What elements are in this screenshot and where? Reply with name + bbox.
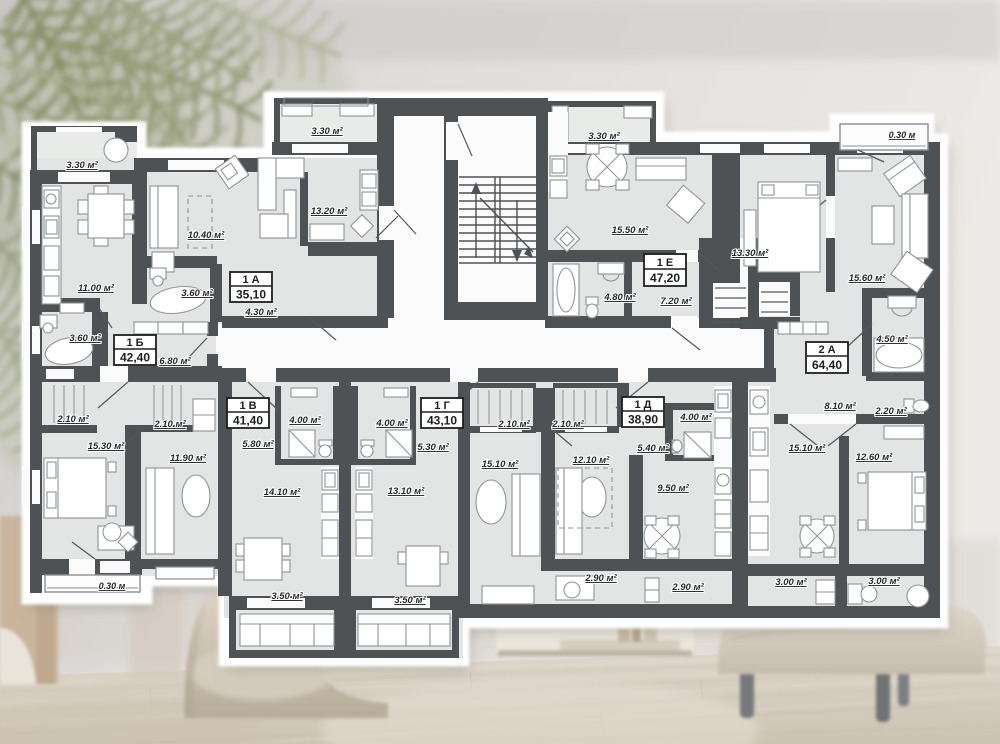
- svg-text:3.60 м²: 3.60 м²: [69, 333, 101, 344]
- svg-text:41,40: 41,40: [233, 414, 263, 428]
- svg-text:1 В: 1 В: [239, 400, 256, 412]
- svg-text:42,40: 42,40: [120, 351, 150, 365]
- svg-text:3.30 м²: 3.30 м²: [588, 131, 620, 142]
- svg-text:4.00 м²: 4.00 м²: [375, 418, 408, 429]
- svg-text:15.50 м²: 15.50 м²: [612, 225, 649, 236]
- svg-text:0.30 м: 0.30 м: [99, 581, 126, 591]
- svg-text:35,10: 35,10: [236, 288, 266, 302]
- svg-text:1 А: 1 А: [242, 274, 259, 286]
- svg-text:3.30 м²: 3.30 м²: [66, 160, 98, 171]
- svg-text:12.10 м²: 12.10 м²: [573, 455, 610, 466]
- svg-text:43,10: 43,10: [427, 414, 457, 428]
- svg-text:2.10 м²: 2.10 м²: [153, 419, 186, 430]
- svg-text:2.10 м²: 2.10 м²: [551, 419, 584, 430]
- svg-text:4.00 м²: 4.00 м²: [288, 415, 321, 426]
- svg-text:1 Д: 1 Д: [634, 399, 651, 411]
- svg-text:47,20: 47,20: [650, 271, 680, 285]
- svg-text:2.90 м²: 2.90 м²: [671, 582, 704, 593]
- svg-text:5.40 м²: 5.40 м²: [637, 443, 669, 454]
- svg-text:4.30 м²: 4.30 м²: [244, 307, 277, 318]
- svg-text:13.30 м²: 13.30 м²: [732, 248, 769, 259]
- svg-text:1 Е: 1 Е: [657, 257, 674, 269]
- svg-text:9.50 м²: 9.50 м²: [657, 483, 689, 494]
- svg-text:2 А: 2 А: [818, 344, 835, 356]
- svg-text:15.10 м²: 15.10 м²: [789, 443, 826, 454]
- svg-text:2.90 м²: 2.90 м²: [584, 573, 617, 584]
- svg-text:64,40: 64,40: [812, 358, 842, 372]
- svg-text:6.80 м²: 6.80 м²: [159, 356, 191, 367]
- svg-text:4.80 м²: 4.80 м²: [603, 292, 636, 303]
- svg-text:3.00 м²: 3.00 м²: [775, 577, 807, 588]
- svg-text:15.30 м²: 15.30 м²: [88, 441, 125, 452]
- svg-text:7.20 м²: 7.20 м²: [660, 296, 692, 307]
- svg-text:3.00 м²: 3.00 м²: [868, 576, 900, 587]
- svg-text:4.00 м²: 4.00 м²: [679, 412, 712, 423]
- svg-text:2.20 м²: 2.20 м²: [874, 406, 907, 417]
- svg-text:2.10 м²: 2.10 м²: [497, 419, 530, 430]
- svg-text:13.10 м²: 13.10 м²: [388, 486, 425, 497]
- svg-text:11.90 м²: 11.90 м²: [170, 453, 207, 464]
- svg-text:1 Б: 1 Б: [126, 337, 143, 349]
- svg-text:4.50 м²: 4.50 м²: [875, 334, 908, 345]
- svg-text:1 Г: 1 Г: [434, 400, 450, 412]
- svg-text:5.80 м²: 5.80 м²: [242, 439, 274, 450]
- svg-text:8.10 м²: 8.10 м²: [824, 401, 856, 412]
- svg-text:3.50 м²: 3.50 м²: [394, 595, 426, 606]
- svg-text:12.60 м²: 12.60 м²: [856, 452, 893, 463]
- svg-text:5.30 м²: 5.30 м²: [417, 442, 449, 453]
- svg-text:38,90: 38,90: [628, 413, 658, 427]
- svg-text:11.00 м²: 11.00 м²: [78, 283, 115, 294]
- svg-text:14.10 м²: 14.10 м²: [264, 487, 301, 498]
- svg-text:13.20 м²: 13.20 м²: [311, 206, 348, 217]
- svg-text:10.40 м²: 10.40 м²: [188, 230, 225, 241]
- svg-text:15.10 м²: 15.10 м²: [482, 459, 519, 470]
- svg-text:2.10 м²: 2.10 м²: [56, 414, 89, 425]
- svg-text:15.60 м²: 15.60 м²: [849, 273, 886, 284]
- svg-text:3.60 м²: 3.60 м²: [181, 288, 213, 299]
- svg-text:3.30 м²: 3.30 м²: [311, 126, 343, 137]
- svg-text:3.50 м²: 3.50 м²: [271, 591, 303, 602]
- svg-text:0.30 м: 0.30 м: [889, 130, 916, 140]
